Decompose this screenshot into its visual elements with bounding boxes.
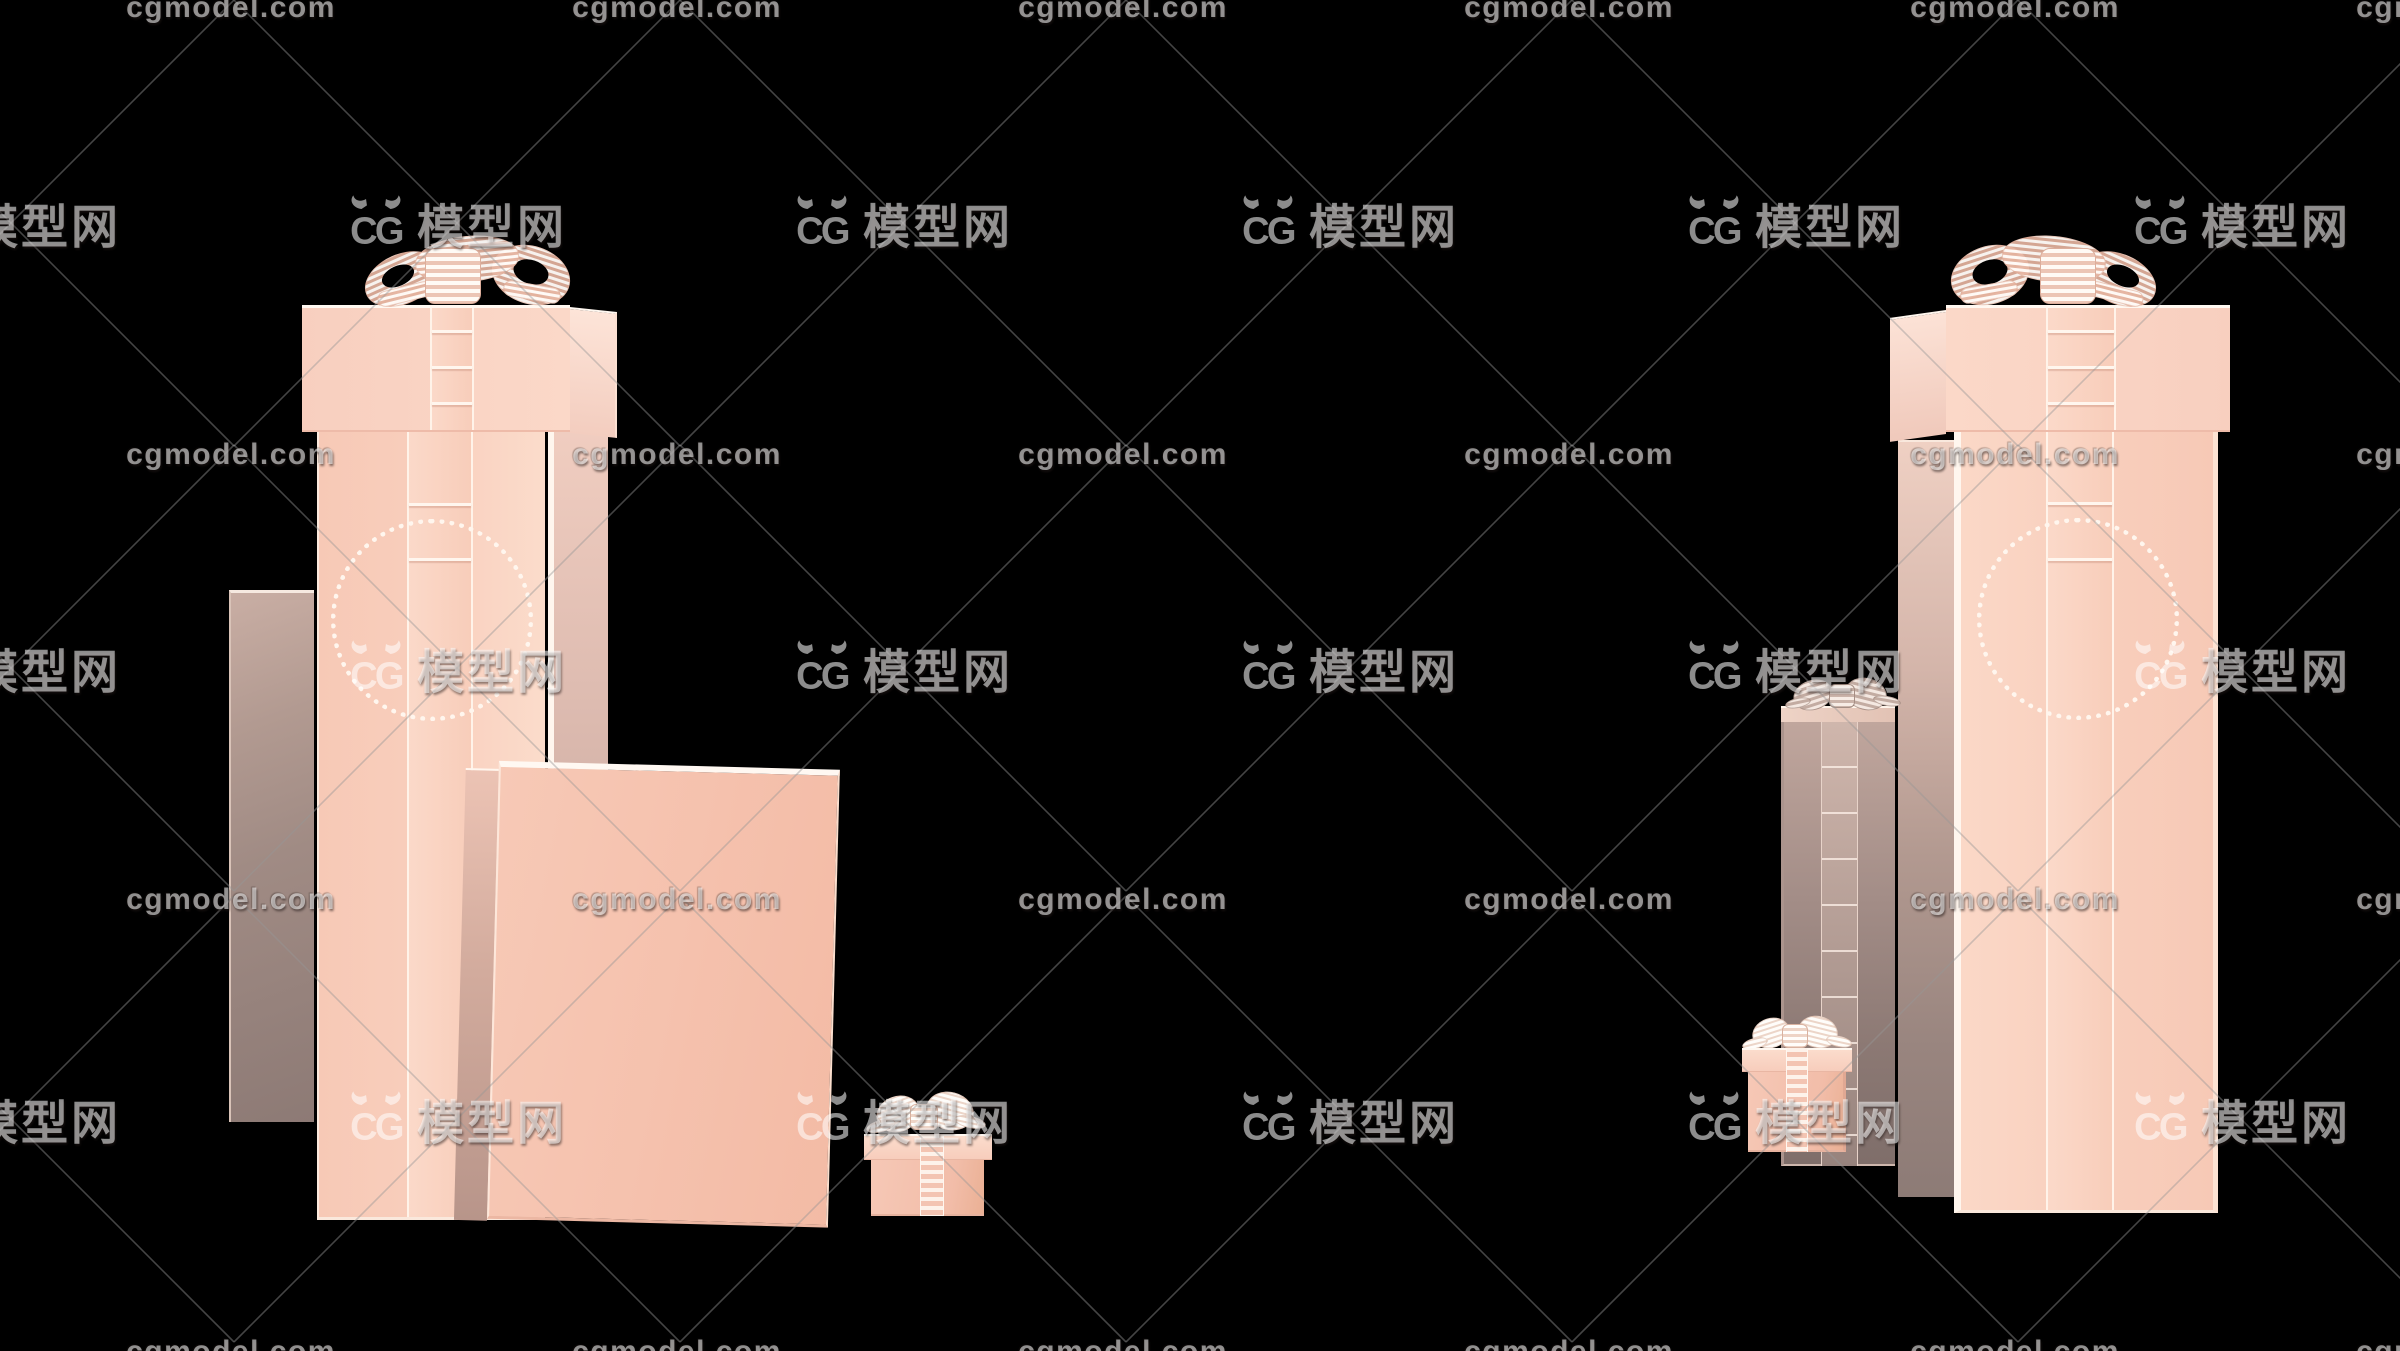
backdrop-panel: [229, 590, 314, 1122]
dotted-emblem-ring: [1977, 518, 2179, 720]
gray-box-bow: [1793, 672, 1893, 714]
dotted-emblem-ring: [331, 519, 533, 721]
ribbon-rung: [2048, 502, 2112, 505]
tall-box-front-face: [1954, 432, 2218, 1213]
box-lid-side: [570, 307, 617, 438]
bow-knot: [2040, 248, 2096, 304]
bow-knot: [425, 248, 481, 304]
box-lid-side: [1890, 310, 1946, 442]
render-canvas: cgmodel.comcgmodel.comcgmodel.comcgmodel…: [0, 0, 2400, 1351]
box-lid-front: [302, 305, 570, 432]
ribbon-bow: [363, 240, 569, 308]
ribbon-rung: [432, 330, 472, 333]
ribbon-band-lid: [430, 308, 474, 430]
bow-knot: [1829, 684, 1855, 708]
ribbon-rung: [432, 366, 472, 369]
ribbon-bow: [1948, 240, 2158, 310]
bow-tail: [865, 1116, 897, 1135]
ribbon-band-lid: [2046, 308, 2116, 430]
ribbon-rung: [2048, 330, 2114, 333]
scene: [0, 0, 2400, 1351]
flat-box-front-face: [487, 761, 840, 1228]
box-lid-front: [1946, 305, 2230, 432]
mini-gift-box: [1742, 1010, 1852, 1152]
mini-gift-box: [862, 1086, 994, 1218]
mini-ribbon-band: [1786, 1048, 1808, 1152]
flat-gift-box: [454, 760, 840, 1236]
mini-ribbon-band: [920, 1134, 944, 1216]
ribbon-rung: [2048, 402, 2114, 405]
ribbon-rung: [409, 503, 471, 506]
bow-knot: [910, 1104, 938, 1130]
ribbon-rung: [432, 402, 472, 405]
bow-knot: [1782, 1024, 1808, 1048]
ribbon-rung: [2048, 366, 2114, 369]
tall-box-side-face: [1898, 440, 1954, 1197]
